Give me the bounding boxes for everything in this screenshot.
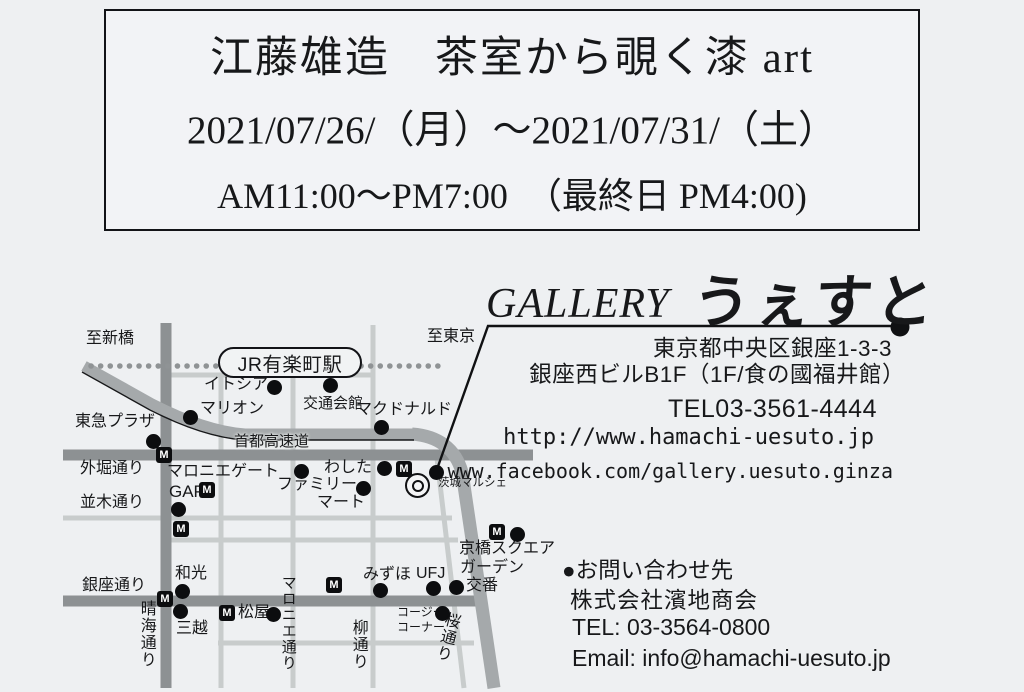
dot-marion (183, 410, 198, 425)
label-maronie-gate: マロニエゲート (167, 464, 279, 481)
gallery-phone: TEL03-3561-4444 (668, 395, 877, 424)
label-harumi-dori: 晴海通り (137, 600, 154, 668)
dot-mitsukoshi (173, 604, 188, 619)
label-maronie-dori: マロニエ通り (280, 575, 296, 671)
direction-shimbashi: 至新橋 (86, 331, 134, 348)
metro-m-glyph: M (492, 526, 501, 538)
contact-phone: TEL: 03-3564-0800 (572, 614, 770, 641)
gallery-logo-kana: うぇすと (689, 255, 940, 339)
dot-ufj (426, 581, 441, 596)
metro-icon: M (199, 482, 215, 498)
gallery-website-url: http://www.hamachi-uesuto.jp (503, 425, 874, 450)
direction-tokyo: 至東京 (427, 329, 475, 346)
metro-icon: M (219, 605, 235, 621)
gallery-location-marker (405, 473, 430, 498)
label-marion: マリオン (200, 401, 264, 418)
metro-icon: M (489, 524, 505, 540)
label-mitsukoshi: 三越 (176, 621, 208, 638)
dot-cozy-corner (435, 606, 450, 621)
dot-maronie-gate (294, 464, 309, 479)
dot-kyobashi-square (510, 527, 525, 542)
dot-mizuho (373, 583, 388, 598)
gallery-address-line2: 銀座西ビルB1F（1F/食の國福井館） (529, 357, 905, 389)
label-kyobashi-square-2: ガーデン (460, 560, 524, 577)
dot-washita (377, 461, 392, 476)
gallery-logo-latin: GALLERY (486, 280, 670, 328)
dot-gap (171, 502, 186, 517)
label-mizuho: みずほ (363, 567, 411, 584)
metro-icon: M (173, 521, 189, 537)
metro-m-glyph: M (202, 484, 211, 496)
dot-wako (175, 584, 190, 599)
metro-icon: M (156, 447, 172, 463)
label-namiki-dori: 並木通り (80, 495, 144, 512)
metro-icon: M (326, 577, 342, 593)
metro-m-glyph: M (399, 463, 408, 475)
label-kyobashi-square-1: 京橋スクエア (459, 541, 555, 558)
dot-mcdonalds (374, 420, 389, 435)
label-kotsukaikan: 交通会館 (303, 396, 363, 412)
label-sotobori-dori: 外堀通り (80, 461, 144, 478)
label-yanagi-dori: 柳通り (349, 619, 366, 670)
dot-ibaraki-marche (429, 465, 444, 480)
gallery-facebook-url: www.facebook.com/gallery.uesuto.ginza (447, 459, 893, 483)
label-wako: 和光 (175, 566, 207, 583)
dot-itocia (267, 380, 282, 395)
contact-heading: ●お問い合わせ先 (562, 553, 733, 585)
dot-family-mart (356, 481, 371, 496)
metro-m-glyph: M (159, 449, 168, 461)
label-koban: 交番 (466, 578, 498, 595)
metro-m-glyph: M (160, 593, 169, 605)
metro-m-glyph: M (329, 579, 338, 591)
label-family-mart-2: マート (317, 495, 365, 512)
label-tokyu-plaza: 東急プラザ (75, 414, 155, 431)
metro-m-glyph: M (222, 607, 231, 619)
label-mcdonalds: マクドナルド (356, 402, 452, 419)
label-itocia: イトシア (204, 377, 268, 394)
label-family-mart-1: ファミリー (277, 477, 357, 494)
metro-m-glyph: M (176, 523, 185, 535)
dot-koban (449, 580, 464, 595)
metro-icon: M (157, 591, 173, 607)
flyer-page: { "header": { "title": "江藤雄造 茶室から覗く漆 art… (0, 0, 1024, 692)
gallery-location-marker-inner (412, 480, 424, 492)
contact-company: 株式会社濱地商会 (570, 583, 758, 615)
contact-email: Email: info@hamachi-uesuto.jp (572, 645, 891, 672)
dot-matsuya (266, 607, 281, 622)
label-expressway: 首都高速道 (234, 434, 309, 450)
label-washita: わした (324, 460, 372, 477)
dot-kotsukaikan (323, 378, 338, 393)
label-ginza-dori: 銀座通り (82, 578, 146, 595)
yurakucho-station-badge: JR有楽町駅 (218, 347, 362, 378)
